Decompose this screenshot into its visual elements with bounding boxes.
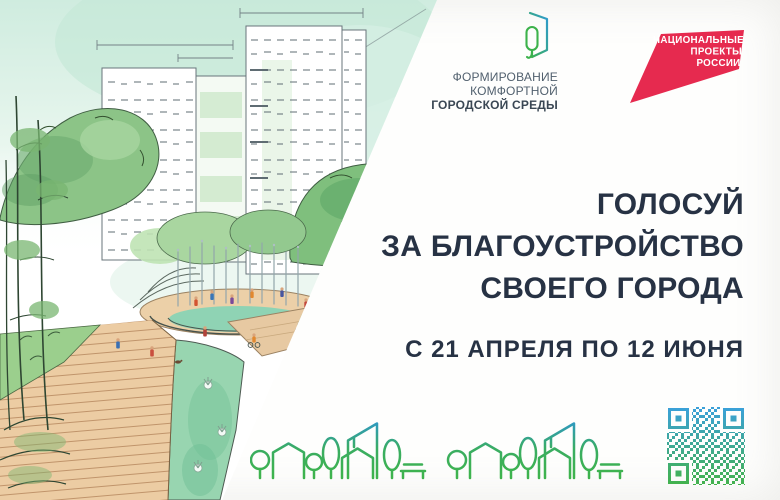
- np-line1: НАЦИОНАЛЬНЫЕ: [653, 35, 744, 46]
- headline-line1: ГОЛОСУЙ: [381, 184, 744, 226]
- leaf-window-icon: [519, 10, 551, 66]
- np-line3: РОССИИ: [696, 58, 740, 69]
- np-line2: ПРОЕКТЫ: [690, 47, 742, 58]
- skyline-icons: [250, 414, 650, 484]
- fkgs-line2: КОМФОРТНОЙ: [398, 84, 558, 98]
- water-channel: [168, 340, 244, 500]
- national-projects-logo: НАЦИОНАЛЬНЫЕ ПРОЕКТЫ РОССИИ: [616, 0, 756, 110]
- headline: ГОЛОСУЙ ЗА БЛАГОУСТРОЙСТВО СВОЕГО ГОРОДА: [381, 184, 744, 310]
- voting-dates: С 21 АПРЕЛЯ ПО 12 ИЮНЯ: [405, 336, 744, 364]
- poster: ФОРМИРОВАНИЕ КОМФОРТНОЙ ГОРОДСКОЙ СРЕДЫ …: [0, 0, 780, 500]
- headline-line3: СВОЕГО ГОРОДА: [381, 268, 744, 310]
- fkgs-line1: ФОРМИРОВАНИЕ: [398, 70, 558, 84]
- qr-code: [666, 406, 746, 486]
- fkgs-line3: ГОРОДСКОЙ СРЕДЫ: [398, 98, 558, 112]
- headline-line2: ЗА БЛАГОУСТРОЙСТВО: [381, 226, 744, 268]
